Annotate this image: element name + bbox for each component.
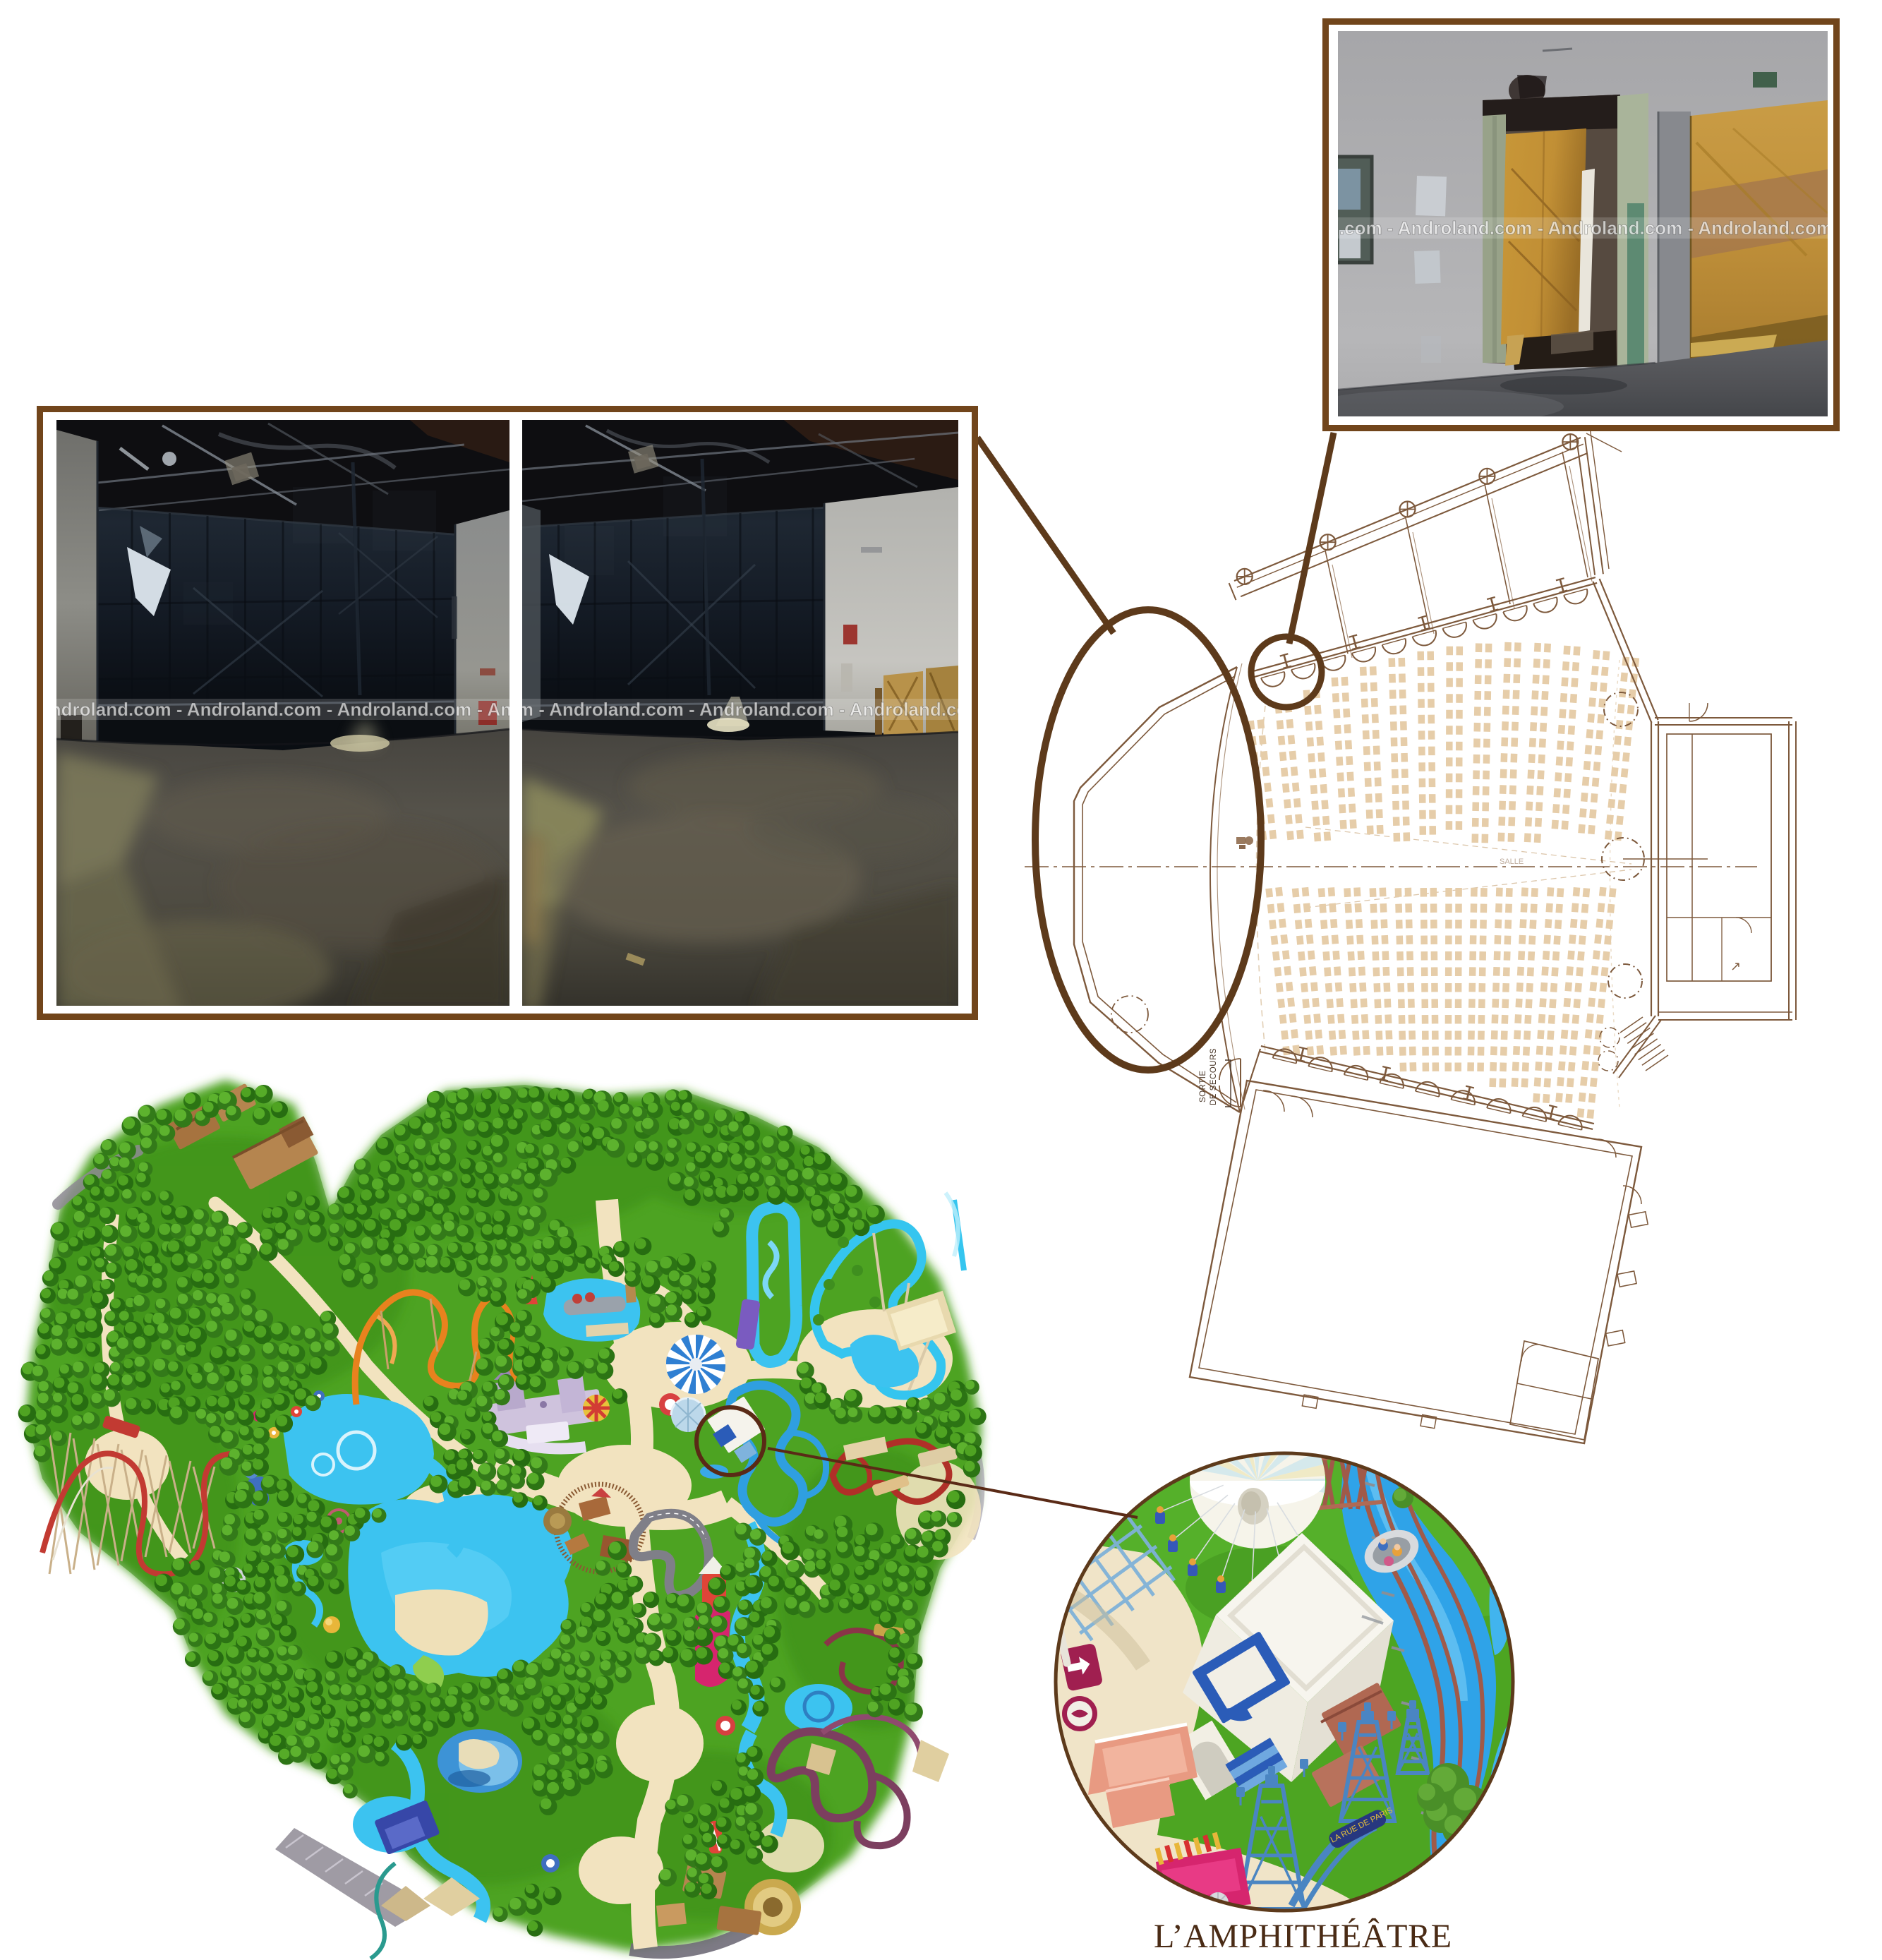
- svg-text:DE SECOURS: DE SECOURS: [1210, 1048, 1218, 1105]
- svg-text:L’AMPHITHÉÂTRE: L’AMPHITHÉÂTRE: [1154, 1918, 1452, 1955]
- svg-text:↗: ↗: [1730, 959, 1741, 973]
- svg-text:SALLE: SALLE: [1500, 858, 1524, 866]
- svg-text:SORTIE: SORTIE: [1199, 1070, 1207, 1102]
- svg-text:d.com - Androland.com - Androl: d.com - Androland.com - Androland.com - …: [1328, 217, 1882, 239]
